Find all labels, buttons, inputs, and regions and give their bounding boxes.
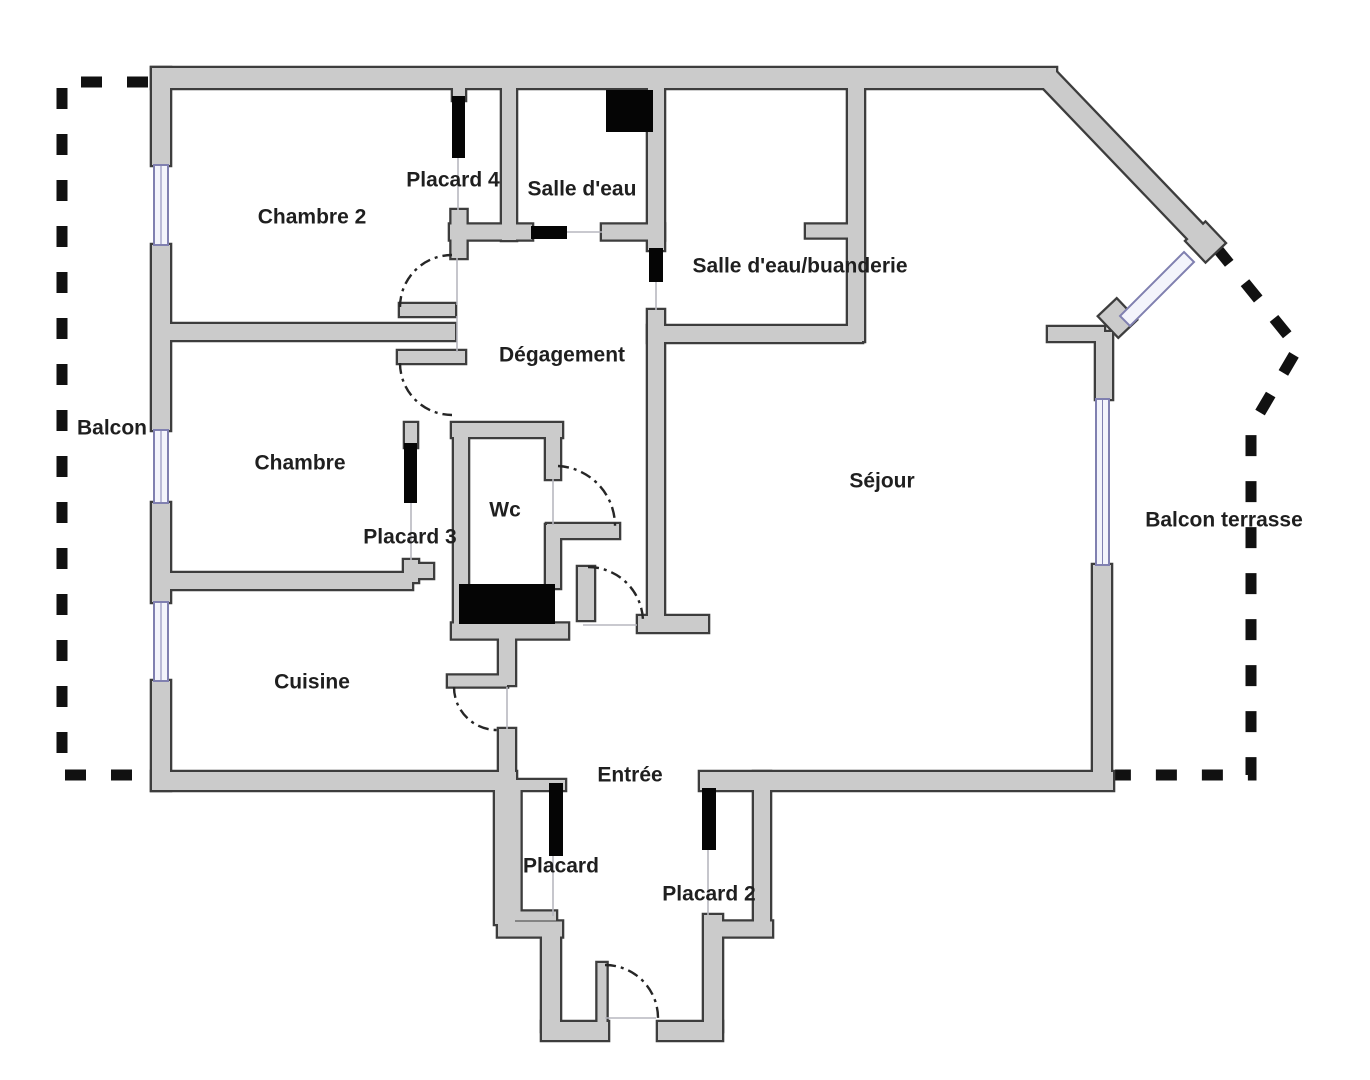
black-fixture	[649, 248, 663, 282]
room-label-cuisine: Cuisine	[274, 671, 350, 694]
room-label-placard2: Placard 2	[662, 883, 755, 906]
room-label-buanderie: Salle d'eau/buanderie	[692, 255, 907, 278]
black-fixture	[549, 783, 563, 856]
room-label-wc: Wc	[489, 499, 521, 522]
door-swing-arc	[400, 255, 452, 307]
room-label-sejour: Séjour	[849, 470, 914, 493]
wall	[1048, 78, 1208, 245]
black-fixture	[606, 90, 653, 132]
black-fixture	[702, 788, 716, 850]
room-label-balcon_terrasse: Balcon terrasse	[1145, 509, 1303, 532]
room-label-degagement: Dégagement	[499, 344, 625, 367]
black-fixture	[452, 96, 465, 158]
door-swing-arc	[558, 466, 615, 527]
windows-layer	[154, 165, 1194, 681]
room-labels-layer: BalconChambre 2Placard 4Salle d'eauSalle…	[77, 169, 1303, 906]
room-label-balcon: Balcon	[77, 417, 147, 440]
floor-plan: BalconChambre 2Placard 4Salle d'eauSalle…	[0, 0, 1370, 1080]
room-label-chambre: Chambre	[254, 452, 345, 475]
window-diagonal	[1120, 252, 1194, 326]
room-label-placard3: Placard 3	[363, 526, 456, 549]
door-swing-arc	[605, 965, 658, 1018]
black-fixture	[459, 584, 555, 624]
door-swing-arc	[454, 687, 497, 730]
room-label-chambre2: Chambre 2	[258, 206, 367, 229]
room-label-entree: Entrée	[597, 764, 662, 787]
wall	[1196, 232, 1215, 252]
black-fixture	[531, 226, 567, 239]
room-label-placard: Placard	[523, 855, 599, 878]
floor-plan-svg: BalconChambre 2Placard 4Salle d'eauSalle…	[0, 0, 1370, 1080]
room-label-placard4: Placard 4	[406, 169, 500, 192]
door-swing-arc	[400, 363, 452, 415]
black-fixture	[404, 443, 417, 503]
room-label-salle_deau: Salle d'eau	[528, 178, 637, 201]
